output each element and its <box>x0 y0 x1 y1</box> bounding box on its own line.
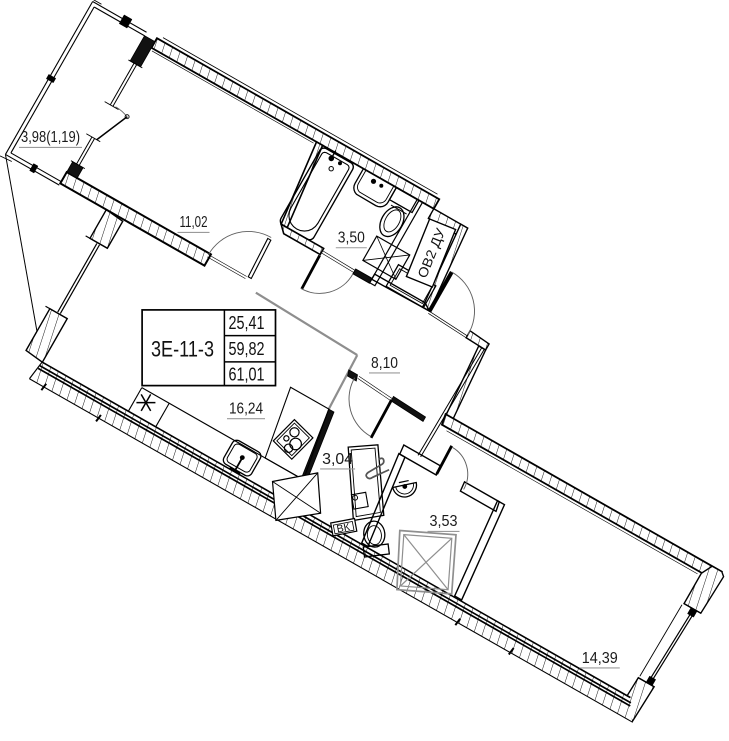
svg-text:16,24: 16,24 <box>229 400 263 417</box>
svg-text:3,50: 3,50 <box>338 230 365 247</box>
svg-text:3,98(1,19): 3,98(1,19) <box>21 129 80 146</box>
svg-text:3Е-11-3: 3Е-11-3 <box>151 337 214 362</box>
svg-text:3,04: 3,04 <box>322 451 353 468</box>
svg-text:8,10: 8,10 <box>371 355 398 372</box>
svg-text:59,82: 59,82 <box>229 339 265 359</box>
svg-text:61,01: 61,01 <box>229 365 265 385</box>
svg-text:11,02: 11,02 <box>180 214 208 231</box>
svg-text:14,39: 14,39 <box>582 650 618 667</box>
svg-text:25,41: 25,41 <box>229 313 265 333</box>
svg-text:3,53: 3,53 <box>430 513 458 530</box>
